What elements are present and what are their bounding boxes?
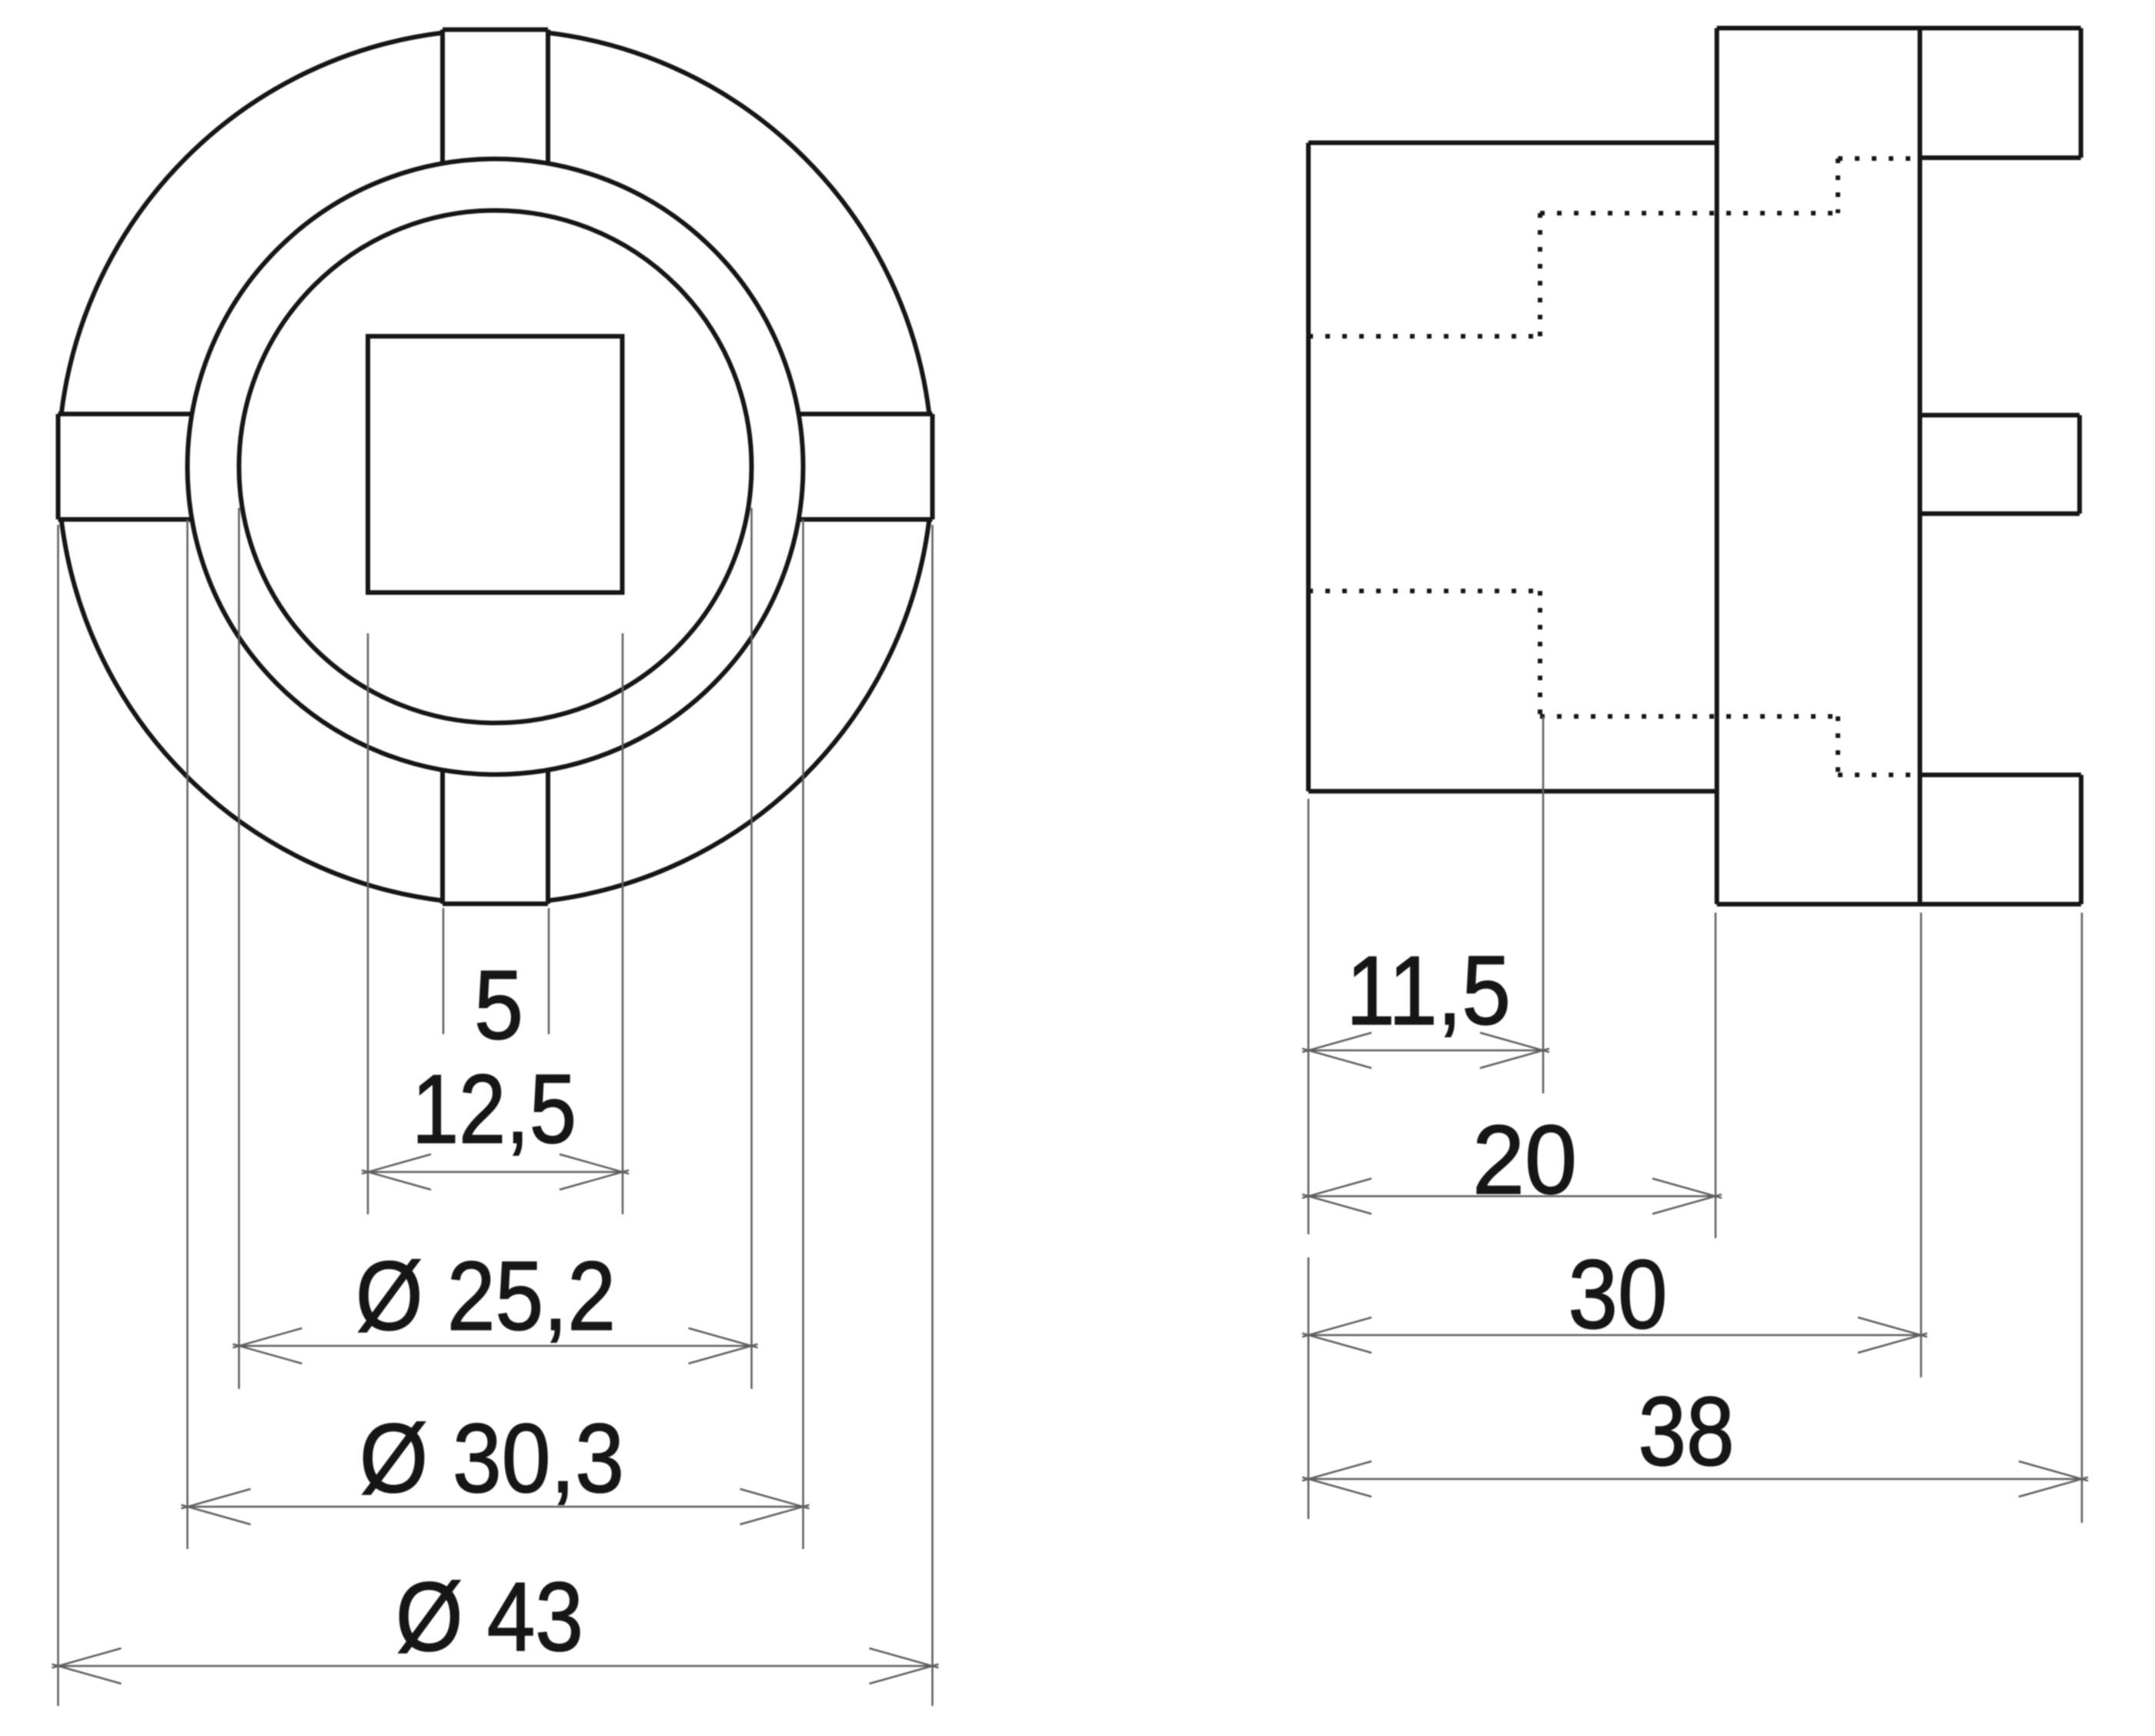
svg-text:5: 5: [474, 950, 523, 1060]
svg-text:12,5: 12,5: [412, 1054, 576, 1163]
svg-text:30: 30: [1569, 1240, 1668, 1349]
svg-text:11,5: 11,5: [1346, 936, 1511, 1045]
svg-text:Ø 30,3: Ø 30,3: [359, 1404, 624, 1513]
svg-text:20: 20: [1472, 1105, 1577, 1214]
svg-text:Ø 43: Ø 43: [396, 1562, 583, 1671]
svg-text:38: 38: [1639, 1377, 1735, 1486]
svg-text:Ø 25,2: Ø 25,2: [356, 1241, 616, 1350]
